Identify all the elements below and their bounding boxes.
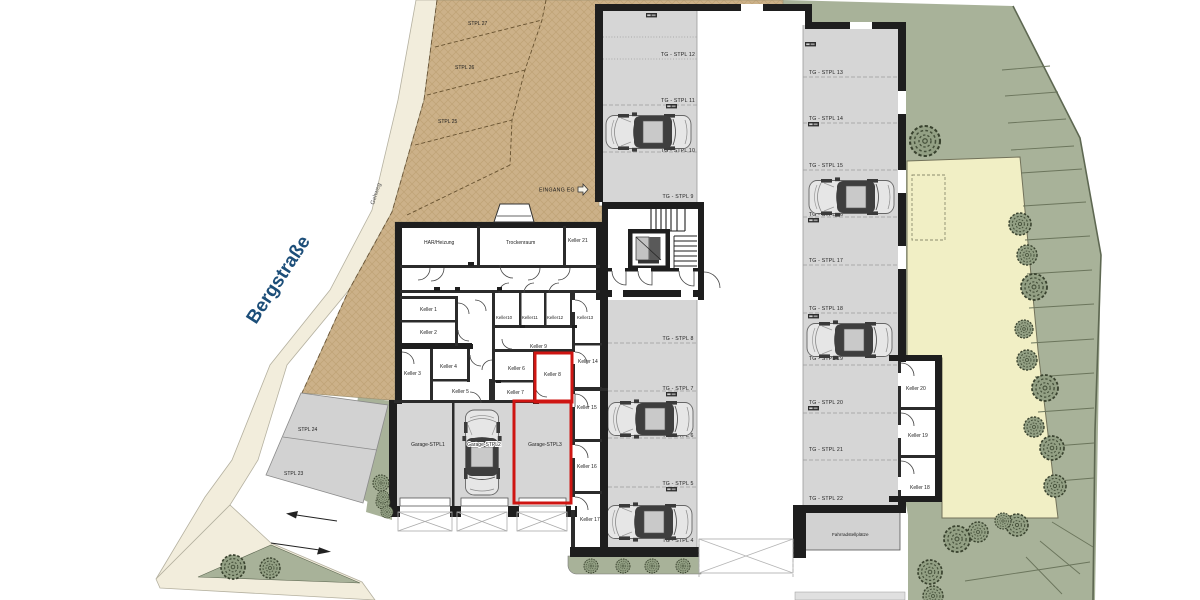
svg-text:Garage-STPL1: Garage-STPL1: [411, 442, 445, 448]
svg-text:Keller 3: Keller 3: [404, 371, 421, 377]
svg-text:Garage-STPL3: Garage-STPL3: [528, 442, 562, 448]
svg-text:TG - STPL 12: TG - STPL 12: [661, 52, 695, 58]
svg-text:Keller13: Keller13: [577, 315, 594, 320]
svg-text:Keller 18: Keller 18: [910, 485, 930, 491]
svg-text:Garage-STPL2: Garage-STPL2: [467, 442, 501, 448]
svg-text:Fahrradstellplätze: Fahrradstellplätze: [832, 532, 869, 537]
svg-text:Keller12: Keller12: [547, 315, 564, 320]
svg-text:Keller11: Keller11: [522, 315, 538, 320]
svg-text:Keller 14: Keller 14: [578, 359, 598, 365]
svg-text:TG - STPL 7: TG - STPL 7: [662, 386, 693, 392]
svg-text:TG - STPL 20: TG - STPL 20: [809, 400, 843, 406]
svg-text:Keller10: Keller10: [496, 315, 513, 320]
svg-text:TG - STPL 5: TG - STPL 5: [662, 481, 693, 487]
svg-text:STPL 25: STPL 25: [438, 119, 457, 125]
svg-text:Trockenraum: Trockenraum: [506, 240, 535, 246]
svg-text:Keller 16: Keller 16: [577, 464, 597, 470]
svg-text:TG - STPL 9: TG - STPL 9: [662, 194, 693, 200]
svg-text:Keller 20: Keller 20: [906, 386, 926, 392]
svg-text:Keller 7: Keller 7: [507, 390, 524, 396]
svg-text:EINGANG EG: EINGANG EG: [539, 188, 575, 194]
svg-text:TG - STPL 8: TG - STPL 8: [662, 336, 693, 342]
svg-text:TG - STPL 18: TG - STPL 18: [809, 306, 843, 312]
svg-text:TG - STPL 21: TG - STPL 21: [809, 447, 843, 453]
svg-text:Keller 19: Keller 19: [908, 433, 928, 439]
svg-text:Keller 8: Keller 8: [544, 372, 561, 378]
svg-text:HAR/Heizung: HAR/Heizung: [424, 240, 455, 246]
svg-text:Keller 9: Keller 9: [530, 344, 547, 350]
svg-text:STPL 23: STPL 23: [284, 471, 303, 477]
svg-text:TG - STPL 14: TG - STPL 14: [809, 116, 843, 122]
svg-text:TG - STPL 22: TG - STPL 22: [809, 496, 843, 502]
svg-text:Keller 6: Keller 6: [508, 366, 525, 372]
svg-text:Keller 2: Keller 2: [420, 330, 437, 336]
svg-text:TG - STPL 13: TG - STPL 13: [809, 70, 843, 76]
svg-text:STPL 24: STPL 24: [298, 427, 317, 433]
svg-text:Keller 21: Keller 21: [568, 238, 588, 244]
svg-text:STPL 27: STPL 27: [468, 21, 487, 27]
svg-text:Keller 5: Keller 5: [452, 389, 469, 395]
svg-text:Keller 17: Keller 17: [580, 517, 600, 523]
svg-text:Keller 1: Keller 1: [420, 307, 437, 313]
svg-text:TG - STPL 15: TG - STPL 15: [809, 163, 843, 169]
svg-text:Keller 4: Keller 4: [440, 364, 457, 370]
svg-text:TG - STPL 11: TG - STPL 11: [661, 98, 695, 104]
svg-text:STPL 26: STPL 26: [455, 65, 474, 71]
svg-text:Keller 15: Keller 15: [577, 405, 597, 411]
svg-text:TG - STPL 17: TG - STPL 17: [809, 258, 843, 264]
